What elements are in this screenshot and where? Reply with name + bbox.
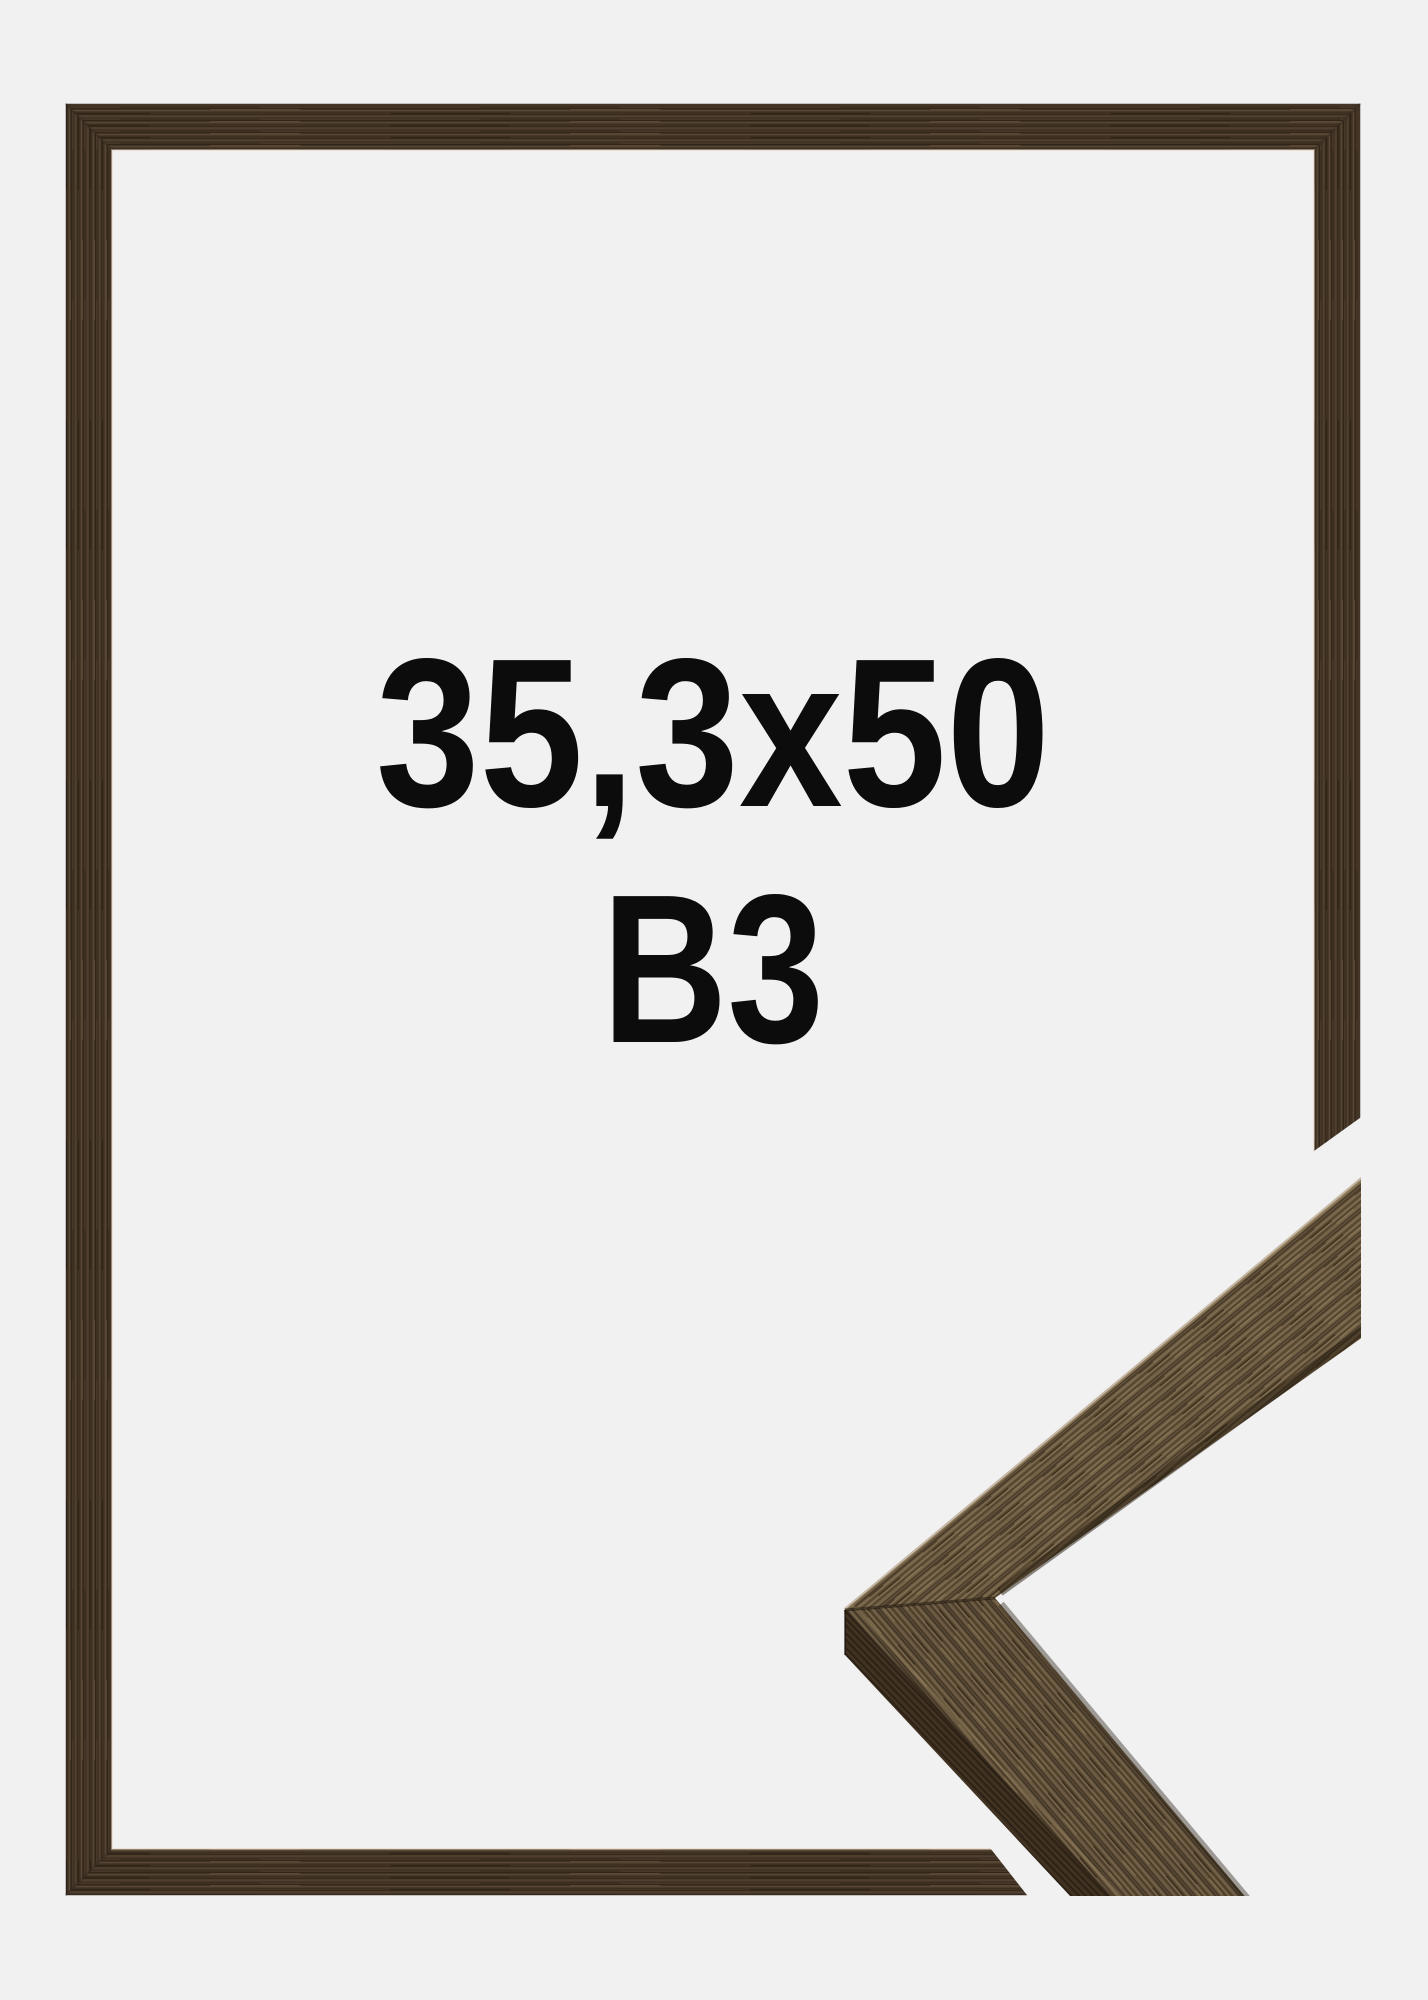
size-label: 35,3x50 [376,615,1050,852]
frame-top-bar [66,104,1360,150]
product-image: 35,3x50 B3 [0,0,1428,2000]
format-label: B3 [602,852,824,1088]
frame-left-bar [66,104,112,1895]
frame-product-scene: 35,3x50 B3 [0,0,1428,2000]
